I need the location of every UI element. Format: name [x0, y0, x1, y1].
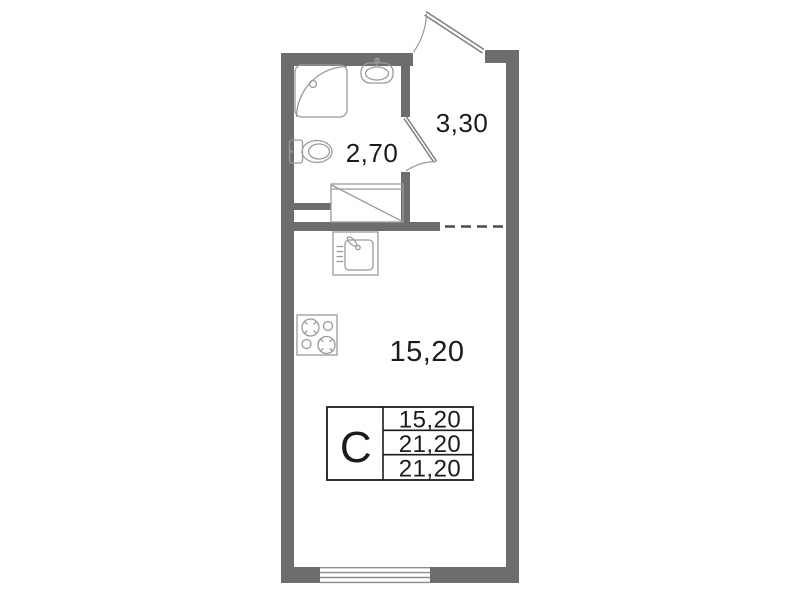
- shower-drain: [310, 81, 317, 88]
- wardrobe-icon: [331, 184, 403, 222]
- window-icon: [320, 567, 430, 583]
- basin-bowl: [366, 67, 389, 80]
- bathroom-area-label: 2,70: [346, 138, 399, 168]
- legend-area-row: 21,20: [399, 431, 462, 458]
- shower-icon: [295, 65, 347, 117]
- wall-bathroom-south: [281, 203, 331, 210]
- entrance-door-icon: [414, 12, 485, 54]
- wall-top-left: [281, 53, 413, 66]
- stove-burner-spokes: [321, 339, 333, 351]
- wall-bathroom-divider-upper: [401, 66, 410, 117]
- shower-tray: [295, 65, 347, 117]
- shower-curved-door: [297, 67, 348, 118]
- wardrobe-diagonal: [332, 185, 403, 222]
- kitchen-sink-icon: [333, 232, 378, 275]
- wall-bottom-left-stub: [281, 567, 320, 583]
- wall-hall-living: [281, 222, 440, 231]
- living-area-label: 15,20: [389, 336, 464, 368]
- stove-burner-spokes: [305, 322, 317, 334]
- wall-left: [281, 53, 294, 583]
- floor-plan-canvas: 2,70 3,30 15,20 С 15,20 21,20 21,20: [0, 0, 799, 600]
- stove-icon: [297, 315, 337, 355]
- door-leaf-line: [425, 15, 483, 53]
- window-body: [320, 567, 430, 583]
- toilet-icon: [290, 140, 333, 163]
- wall-bottom-right-stub: [430, 567, 519, 583]
- toilet-bowl-inner: [309, 144, 330, 159]
- toilet-button: [290, 150, 293, 153]
- door-leaf-line: [404, 119, 434, 163]
- sink-bowl: [345, 240, 373, 270]
- legend-living-area: 15,20: [399, 407, 462, 434]
- door-leaf-line: [407, 117, 437, 161]
- legend-total-area: 21,20: [399, 456, 462, 483]
- sink-tap-knob: [356, 245, 360, 249]
- door-leaf-line: [426, 12, 484, 50]
- door-swing-arc: [414, 14, 427, 53]
- door-swing-arc: [406, 162, 437, 172]
- hallway-area-label: 3,30: [436, 108, 489, 138]
- stove-burner-small: [324, 322, 333, 331]
- bathroom-door-icon: [404, 117, 437, 171]
- area-table: С 15,20 21,20 21,20: [327, 407, 473, 483]
- sink-counter: [333, 232, 378, 275]
- stove-burner-small: [302, 340, 311, 349]
- apartment-type-letter: С: [340, 423, 372, 472]
- wall-right: [506, 50, 519, 583]
